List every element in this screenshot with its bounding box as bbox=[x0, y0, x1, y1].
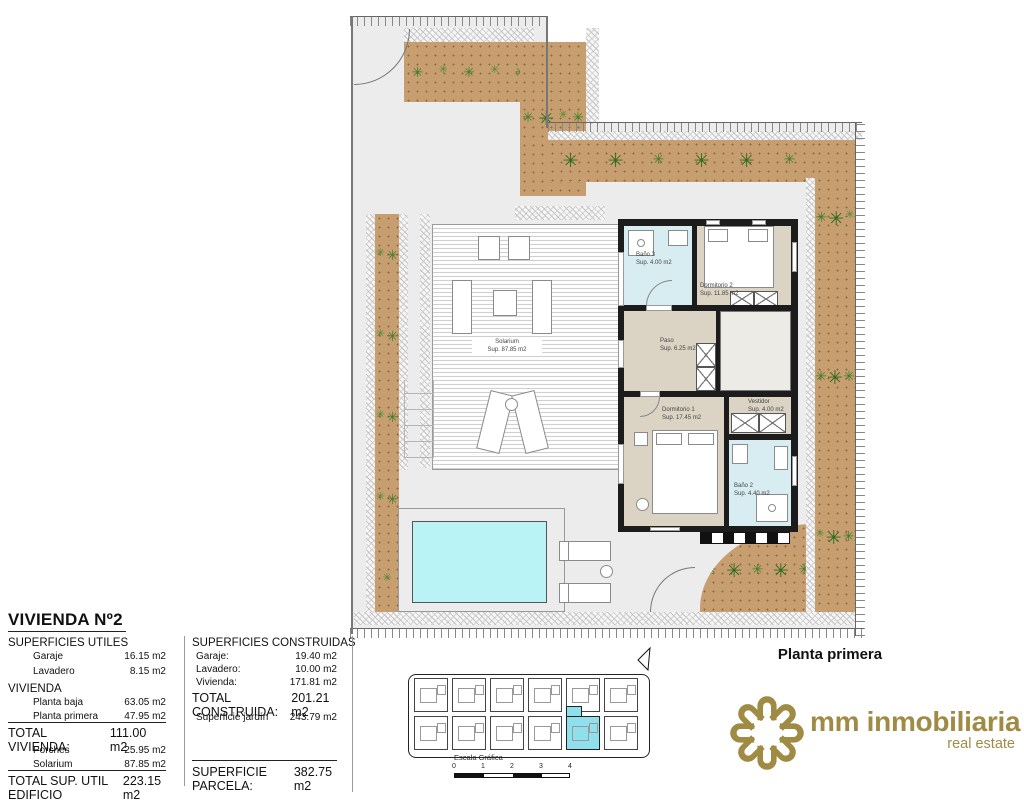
total-row: TOTAL SUP. UTIL EDIFICIO 223.15 m2 bbox=[8, 774, 166, 800]
closet-cell bbox=[731, 413, 759, 433]
unit-mark bbox=[513, 685, 522, 695]
plant-icon bbox=[843, 369, 855, 388]
row-label: Planta baja bbox=[8, 697, 83, 708]
total-value: 223.15 m2 bbox=[123, 774, 166, 800]
row-label: Porches bbox=[8, 745, 70, 756]
total-label: TOTAL SUP. UTIL EDIFICIO bbox=[8, 774, 123, 800]
site-unit bbox=[604, 716, 638, 750]
total-label: SUPERFICIE PARCELA: bbox=[192, 765, 294, 793]
row-label: Solarium bbox=[8, 759, 72, 770]
glass-door bbox=[618, 340, 624, 368]
scale-label: Escala Gráfica bbox=[454, 753, 503, 762]
unit-mark bbox=[534, 726, 551, 741]
wall bbox=[724, 434, 791, 440]
unit-mark bbox=[475, 723, 484, 733]
table-row: Garaje: 19.40 m2 bbox=[196, 651, 337, 662]
plant-icon bbox=[386, 410, 398, 424]
round-table bbox=[505, 398, 518, 411]
row-value: 63.05 m2 bbox=[124, 697, 166, 708]
room-label-dormitorio1: Dormitorio 1 Sup. 17.45 m2 bbox=[662, 407, 701, 422]
scale-tick: 3 bbox=[539, 763, 543, 770]
garden-bed-top bbox=[404, 42, 534, 102]
row-label: Lavadero bbox=[8, 666, 75, 677]
floor-plan-sheet: Solarium Sup. 87.85 m2 bbox=[0, 0, 1024, 800]
floor-title: Planta primera bbox=[770, 646, 890, 663]
room-area: Sup. 4.00 m2 bbox=[636, 260, 672, 268]
site-unit bbox=[452, 716, 486, 750]
wall bbox=[618, 305, 792, 311]
table-row: Superficie jardín 243.79 m2 bbox=[196, 712, 337, 723]
table-row: Planta primera 47.95 m2 bbox=[8, 711, 166, 722]
brand-tagline: real estate bbox=[820, 736, 1015, 752]
brand-logo-mark bbox=[727, 693, 807, 773]
coffee-table bbox=[493, 290, 517, 316]
plant-icon bbox=[376, 329, 385, 343]
unit-mark bbox=[458, 726, 475, 741]
pillow bbox=[656, 433, 682, 445]
room-label-bano2: Baño 2 Sup. 4.40 m2 bbox=[734, 483, 770, 498]
row-label: Planta primera bbox=[8, 711, 98, 722]
row-value: 171.81 m2 bbox=[290, 677, 337, 688]
wall bbox=[724, 397, 729, 532]
table-row: Lavadero: 10.00 m2 bbox=[196, 664, 337, 675]
scale-tick: 2 bbox=[510, 763, 514, 770]
unit-mark bbox=[572, 726, 589, 741]
garden-bed-left bbox=[375, 214, 399, 618]
plant-icon bbox=[608, 152, 624, 171]
shower-drain bbox=[768, 504, 776, 512]
row-label: Vivienda: bbox=[196, 677, 237, 688]
divider bbox=[8, 631, 126, 632]
plant-icon bbox=[773, 562, 789, 581]
plant-icon bbox=[563, 152, 579, 171]
boundary-wall-step bbox=[546, 16, 548, 128]
plant-icon bbox=[490, 65, 499, 79]
site-unit bbox=[604, 678, 638, 712]
stool bbox=[636, 498, 649, 511]
row-label: Garaje: bbox=[196, 651, 229, 662]
fence-top bbox=[350, 16, 548, 26]
room-label-paso: Paso Sup. 6.25 m2 bbox=[660, 338, 696, 353]
stone-border bbox=[404, 28, 534, 42]
staircase bbox=[720, 311, 791, 391]
wall bbox=[716, 311, 720, 396]
site-unit-highlighted bbox=[566, 716, 600, 750]
pergola-bar bbox=[700, 532, 790, 544]
window bbox=[706, 220, 720, 225]
window bbox=[650, 527, 680, 531]
room-name: Vestidor bbox=[748, 399, 784, 407]
toilet bbox=[732, 444, 748, 464]
plant-icon bbox=[816, 529, 825, 548]
room-label-solarium: Solarium Sup. 87.85 m2 bbox=[472, 338, 542, 355]
scale-tick: 1 bbox=[481, 763, 485, 770]
scale-tick: 0 bbox=[452, 763, 456, 770]
garden-steps bbox=[404, 380, 434, 458]
site-unit bbox=[414, 716, 448, 750]
window bbox=[752, 220, 766, 225]
unit-mark bbox=[420, 726, 437, 741]
room-name: Baño 3 bbox=[636, 252, 672, 260]
divider bbox=[8, 722, 166, 723]
row-value: 10.00 m2 bbox=[295, 664, 337, 675]
unit-mark bbox=[475, 685, 484, 695]
table-row: Garaje 16.15 m2 bbox=[8, 651, 166, 662]
unit-mark bbox=[627, 723, 636, 733]
unit-mark bbox=[437, 723, 446, 733]
window bbox=[792, 242, 797, 272]
pillow bbox=[748, 229, 768, 242]
row-value: 19.40 m2 bbox=[295, 651, 337, 662]
site-unit bbox=[490, 716, 524, 750]
row-value: 8.15 m2 bbox=[130, 666, 166, 677]
fence-right bbox=[855, 122, 865, 636]
boundary-wall-left bbox=[351, 16, 353, 634]
closet-cell bbox=[696, 343, 716, 367]
table-row: Solarium 87.85 m2 bbox=[8, 759, 166, 770]
table-row: Lavadero 8.15 m2 bbox=[8, 666, 166, 677]
unit-mark bbox=[513, 723, 522, 733]
row-value: 16.15 m2 bbox=[124, 651, 166, 662]
stone-border bbox=[806, 178, 815, 612]
construidas-heading: SUPERFICIES CONSTRUIDAS bbox=[192, 637, 356, 649]
total-value: 382.75 m2 bbox=[294, 765, 337, 793]
dwelling-title: VIVIENDA Nº2 bbox=[8, 610, 123, 630]
unit-mark bbox=[437, 685, 446, 695]
room-name: Dormitorio 1 bbox=[662, 407, 701, 415]
unit-mark bbox=[420, 688, 437, 703]
room-name: Solarium bbox=[472, 339, 542, 347]
room-name: Dormitorio 2 bbox=[700, 283, 739, 291]
unit-mark bbox=[627, 685, 636, 695]
sun-lounger bbox=[559, 541, 611, 561]
unit-mark bbox=[534, 688, 551, 703]
pillow bbox=[708, 229, 728, 242]
plant-icon bbox=[815, 369, 827, 388]
sink bbox=[774, 446, 788, 470]
unit-mark bbox=[458, 688, 475, 703]
plant-icon bbox=[694, 152, 710, 171]
table-row: Planta baja 63.05 m2 bbox=[8, 697, 166, 708]
table-row: Vivienda: 171.81 m2 bbox=[196, 677, 337, 688]
room-label-dormitorio2: Dormitorio 2 Sup. 11.85 m2 bbox=[700, 283, 739, 298]
plant-icon bbox=[816, 210, 828, 229]
unit-mark bbox=[610, 688, 627, 703]
plant-icon bbox=[522, 110, 534, 129]
room-area: Sup. 6.25 m2 bbox=[660, 346, 696, 354]
site-unit bbox=[414, 678, 448, 712]
row-value: 243.79 m2 bbox=[290, 712, 337, 723]
unit-mark bbox=[496, 726, 513, 741]
glass-door bbox=[618, 252, 624, 306]
side-table bbox=[478, 236, 500, 260]
utiles-heading: SUPERFICIES UTILES bbox=[8, 637, 128, 649]
side-table bbox=[508, 236, 530, 260]
plant-icon bbox=[386, 492, 398, 506]
side-table bbox=[634, 432, 648, 446]
closet-cell bbox=[759, 413, 787, 433]
scale-bar bbox=[454, 773, 570, 778]
plant-icon bbox=[827, 369, 843, 388]
brand-name: mm inmobiliaria bbox=[810, 706, 1020, 738]
row-label: Lavadero: bbox=[196, 664, 240, 675]
north-arrow-icon bbox=[626, 646, 652, 672]
closet-cell bbox=[696, 367, 716, 391]
plant-icon bbox=[828, 210, 844, 229]
stone-border bbox=[548, 131, 862, 140]
window bbox=[792, 456, 797, 486]
table-row: Porches 25.95 m2 bbox=[8, 745, 166, 756]
room-label-vestidor: Vestidor Sup. 4.00 m2 bbox=[748, 399, 784, 414]
plant-icon bbox=[845, 210, 854, 229]
total-row: SUPERFICIE PARCELA: 382.75 m2 bbox=[192, 765, 337, 793]
plant-icon bbox=[843, 529, 855, 548]
wall bbox=[692, 219, 697, 311]
stone-border bbox=[366, 214, 375, 618]
pillow bbox=[688, 433, 714, 445]
plant-icon bbox=[376, 492, 385, 506]
closet bbox=[731, 413, 786, 433]
row-value: 47.95 m2 bbox=[124, 711, 166, 722]
plant-icon bbox=[439, 65, 448, 79]
plant-icon bbox=[726, 562, 742, 581]
site-unit bbox=[452, 678, 486, 712]
row-value: 87.85 m2 bbox=[124, 759, 166, 770]
plant-icon bbox=[412, 65, 424, 79]
stone-border bbox=[515, 206, 605, 220]
fence-bottom bbox=[350, 628, 864, 638]
row-label: Garaje bbox=[8, 651, 63, 662]
plant-icon bbox=[382, 573, 391, 584]
site-unit bbox=[528, 716, 562, 750]
unit-mark bbox=[610, 726, 627, 741]
sofa bbox=[532, 280, 552, 334]
room-area: Sup. 4.40 m2 bbox=[734, 491, 770, 499]
room-name: Paso bbox=[660, 338, 696, 346]
column-separator bbox=[352, 636, 353, 792]
lounger-line bbox=[568, 542, 569, 560]
plant-icon bbox=[739, 152, 755, 171]
divider bbox=[8, 770, 166, 771]
garden-bed-right bbox=[815, 140, 855, 618]
plant-icon bbox=[826, 529, 842, 548]
scale-tick: 4 bbox=[568, 763, 572, 770]
room-area: Sup. 87.85 m2 bbox=[472, 347, 542, 355]
room-label-bano3: Baño 3 Sup. 4.00 m2 bbox=[636, 252, 672, 267]
glass-door bbox=[618, 444, 624, 484]
site-unit bbox=[490, 678, 524, 712]
stone-border bbox=[354, 612, 856, 625]
unit-mark bbox=[551, 723, 560, 733]
plant-icon bbox=[376, 410, 385, 424]
unit-mark bbox=[589, 685, 598, 695]
sink bbox=[668, 230, 688, 246]
sun-lounger bbox=[559, 583, 611, 603]
stone-border bbox=[586, 28, 599, 124]
room-area: Sup. 4.00 m2 bbox=[748, 407, 784, 415]
row-value: 25.95 m2 bbox=[124, 745, 166, 756]
divider bbox=[192, 760, 337, 761]
fence-upper-right bbox=[548, 122, 862, 132]
sofa bbox=[452, 280, 472, 334]
garden-bed-upper bbox=[548, 140, 855, 182]
plant-icon bbox=[784, 152, 796, 171]
unit-mark bbox=[589, 723, 598, 733]
plant-icon bbox=[463, 65, 475, 79]
unit-mark bbox=[572, 688, 589, 703]
unit-mark bbox=[496, 688, 513, 703]
round-table bbox=[600, 565, 613, 578]
plant-icon bbox=[653, 152, 665, 171]
vivienda-heading: VIVIENDA bbox=[8, 683, 62, 695]
unit-mark bbox=[551, 685, 560, 695]
plant-icon bbox=[376, 248, 385, 262]
column-separator bbox=[184, 636, 185, 786]
room-area: Sup. 11.85 m2 bbox=[700, 291, 739, 299]
plant-icon bbox=[386, 248, 398, 262]
closet bbox=[696, 343, 716, 391]
room-name: Baño 2 bbox=[734, 483, 770, 491]
row-label: Superficie jardín bbox=[196, 712, 268, 723]
plant-icon bbox=[386, 329, 398, 343]
swimming-pool bbox=[412, 521, 547, 603]
shower-drain bbox=[637, 239, 645, 247]
room-area: Sup. 17.45 m2 bbox=[662, 415, 701, 423]
site-unit bbox=[528, 678, 562, 712]
lounger-line bbox=[568, 584, 569, 602]
plant-icon bbox=[752, 562, 764, 581]
